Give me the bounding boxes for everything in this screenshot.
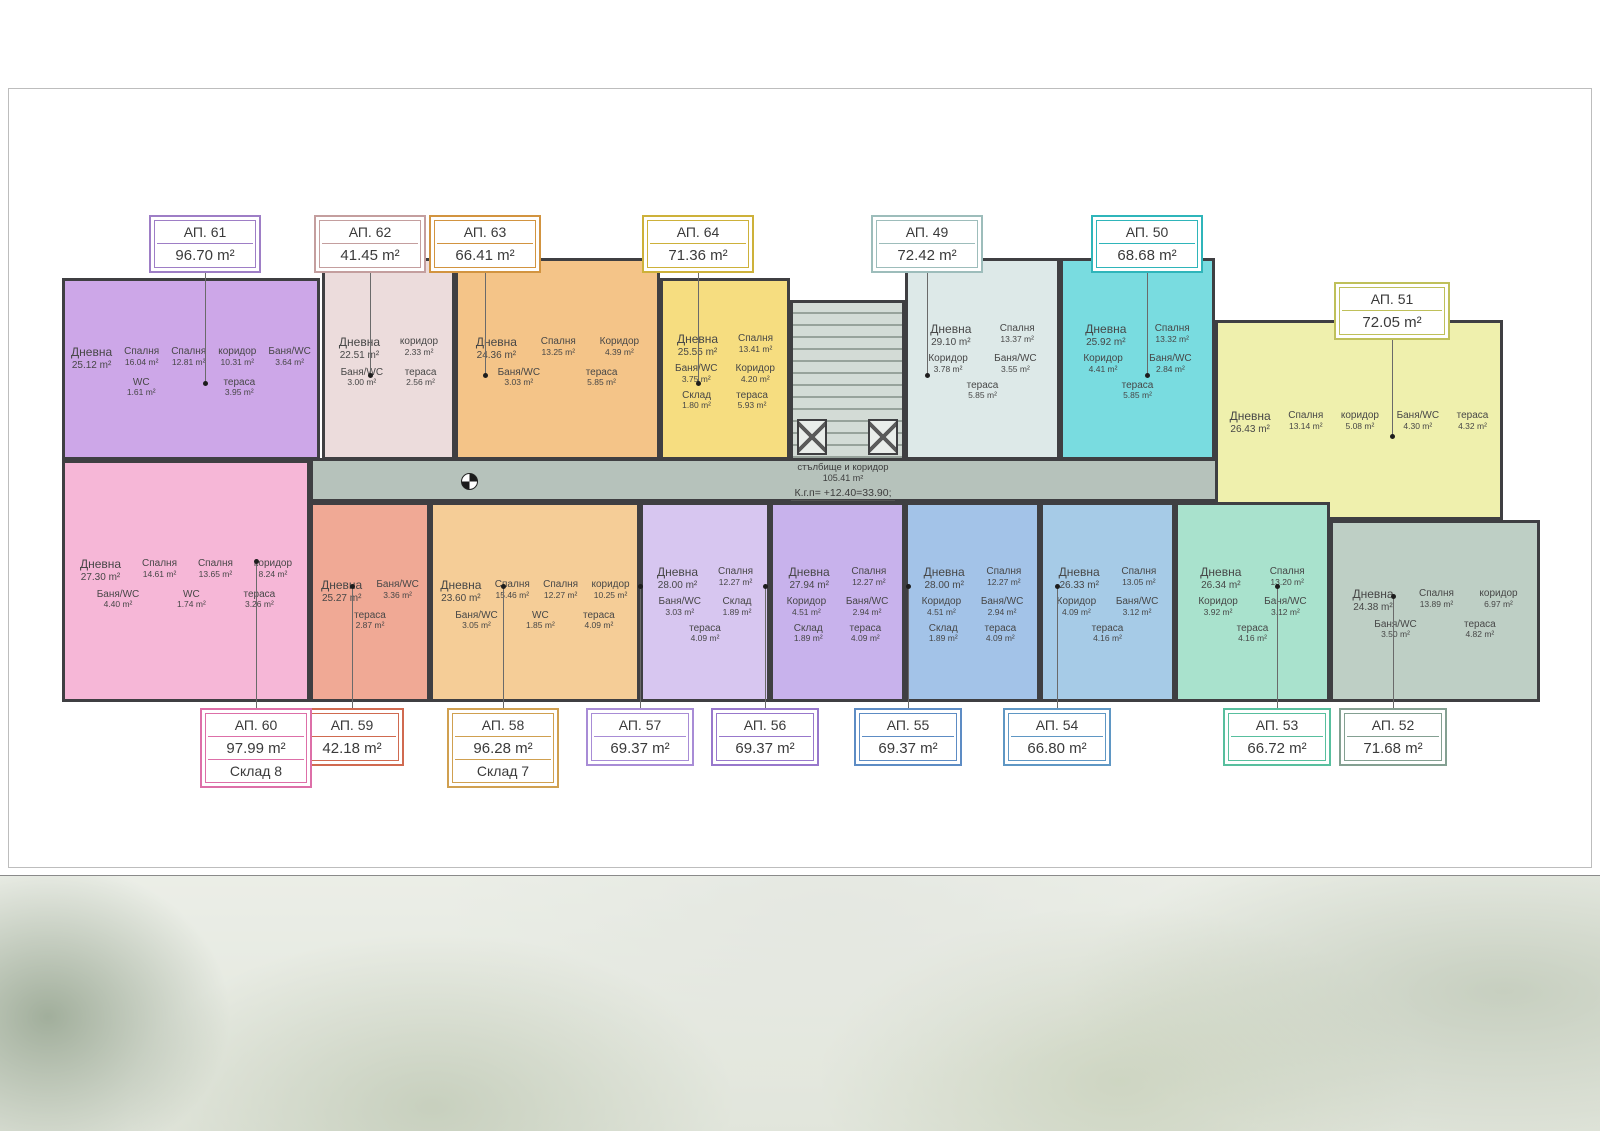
apartment-id: АП. 59 (308, 715, 396, 736)
room-label: Склад1.89 m² (929, 623, 958, 644)
room-label: Дневна29.10 m² (930, 323, 971, 348)
apartment-callout: АП. 5466.80 m² (1003, 708, 1111, 766)
apartment-area: 69.37 m² (594, 736, 686, 759)
apartment-id: АП. 60 (208, 715, 304, 736)
apartment-area: 71.68 m² (1347, 736, 1439, 759)
room-label: Дневна24.36 m² (476, 336, 517, 361)
apartment-id: АП. 58 (455, 715, 551, 736)
apartment-area: 66.72 m² (1231, 736, 1323, 759)
apartment-block: Дневна27.94 m²Спалня12.27 m²Коридор4.51 … (770, 502, 905, 702)
room-label: коридор5.08 m² (1341, 410, 1379, 435)
apartment-area: 68.68 m² (1099, 243, 1195, 266)
apartment-callout: АП. 5896.28 m²Склад 7 (447, 708, 559, 788)
room-label: Коридор4.39 m² (600, 336, 640, 361)
apartment-area: 96.70 m² (157, 243, 253, 266)
callout-leader-line (205, 257, 206, 384)
apartment-callout: АП. 6366.41 m² (429, 215, 541, 273)
leader-dot (763, 584, 768, 589)
room-label: Дневна25.92 m² (1085, 323, 1126, 348)
leader-dot (254, 559, 259, 564)
apartment-area: 69.37 m² (719, 736, 811, 759)
room-label: Склад1.80 m² (682, 390, 711, 411)
room-label: Спалня16.04 m² (124, 346, 159, 371)
callout-leader-line (927, 257, 928, 375)
apartment-block: Дневна27.30 m²Спалня14.61 m²Спалня13.65 … (62, 460, 310, 702)
north-dot-icon (461, 473, 478, 490)
leader-dot (696, 381, 701, 386)
leader-dot (368, 373, 373, 378)
apartment-block: Дневна25.92 m²Спалня13.32 m²Коридор4.41 … (1060, 258, 1215, 460)
room-label: Спалня13.41 m² (738, 333, 773, 358)
room-label: WC1.74 m² (177, 589, 206, 610)
apartment-storage: Склад 8 (208, 759, 304, 781)
room-label: Баня/WC4.30 m² (1397, 410, 1440, 435)
stairwell (790, 300, 905, 461)
callout-leader-line (352, 586, 353, 708)
corridor-label: стълбище и коридор (733, 462, 953, 473)
apartment-area: 97.99 m² (208, 736, 304, 759)
room-label: Баня/WC3.03 m² (498, 367, 541, 388)
apartment-block: Дневна26.43 m²Спалня13.14 m²коридор5.08 … (1215, 320, 1503, 520)
apartment-id: АП. 49 (879, 222, 975, 243)
floor-plan-canvas: стълбище и коридор 105.41 m² К.г.п= +12.… (0, 0, 1600, 870)
room-label: Дневна23.60 m² (440, 579, 481, 604)
room-label: Дневна28.00 m² (657, 566, 698, 591)
room-label: тераса4.09 m² (849, 623, 881, 644)
room-label: тераса4.16 m² (1092, 623, 1124, 644)
room-label: тераса4.09 m² (583, 610, 615, 631)
leader-dot (638, 584, 643, 589)
apartment-area: 69.37 m² (862, 736, 954, 759)
apartment-block: Дневна25.12 m²Спалня16.04 m²Спалня12.81 … (62, 278, 320, 460)
room-label: Дневна27.30 m² (80, 558, 121, 583)
room-label: Дневна24.38 m² (1352, 588, 1393, 613)
room-label: Дневна25.27 m² (321, 579, 362, 604)
apartment-area: 72.05 m² (1342, 310, 1442, 333)
room-label: Склад1.89 m² (794, 623, 823, 644)
room-label: Баня/WC3.50 m² (1374, 619, 1417, 640)
apartment-area: 96.28 m² (455, 736, 551, 759)
room-label: коридор2.33 m² (400, 336, 438, 361)
room-label: Баня/WC2.94 m² (981, 596, 1024, 617)
room-label: Дневна26.34 m² (1200, 566, 1241, 591)
room-label: тераса4.32 m² (1457, 410, 1489, 435)
room-label: тераса2.56 m² (405, 367, 437, 388)
room-label: Спалня12.27 m² (543, 579, 578, 604)
room-label: Баня/WC3.00 m² (341, 367, 384, 388)
apartment-callout: АП. 6241.45 m² (314, 215, 426, 273)
apartment-callout: АП. 5271.68 m² (1339, 708, 1447, 766)
leader-dot (1390, 434, 1395, 439)
apartment-block: Дневна26.33 m²Спалня13.05 m²Коридор4.09 … (1040, 502, 1175, 702)
apartment-block: Дневна25.55 m²Спалня13.41 m²Баня/WC3.75 … (660, 278, 790, 460)
room-label: WC1.85 m² (526, 610, 555, 631)
apartment-callout: АП. 5172.05 m² (1334, 282, 1450, 340)
apartment-block: Дневна29.10 m²Спалня13.37 m²Коридор3.78 … (905, 258, 1060, 460)
room-label: Баня/WC3.05 m² (455, 610, 498, 631)
room-label: Дневна22.51 m² (339, 336, 380, 361)
apartment-id: АП. 55 (862, 715, 954, 736)
room-label: Баня/WC3.12 m² (1116, 596, 1159, 617)
apartment-id: АП. 56 (719, 715, 811, 736)
room-label: Коридор3.78 m² (928, 353, 968, 374)
room-label: Спалня13.14 m² (1288, 410, 1323, 435)
room-label: Спалня13.32 m² (1155, 323, 1190, 348)
room-label: Коридор3.92 m² (1198, 596, 1238, 617)
room-label: коридор10.31 m² (218, 346, 256, 371)
room-label: Спалня13.37 m² (1000, 323, 1035, 348)
room-label: Баня/WC3.03 m² (659, 596, 702, 617)
room-label: коридор10.25 m² (591, 579, 629, 604)
room-label: Коридор4.09 m² (1057, 596, 1097, 617)
callout-leader-line (698, 257, 699, 384)
callout-leader-line (640, 586, 641, 708)
room-label: Баня/WC3.12 m² (1264, 596, 1307, 617)
room-label: тераса3.26 m² (244, 589, 276, 610)
leader-dot (906, 584, 911, 589)
room-label: Спалня13.25 m² (541, 336, 576, 361)
apartment-block: Дневна28.00 m²Спалня12.27 m²Баня/WC3.03 … (640, 502, 770, 702)
leader-dot (925, 373, 930, 378)
room-label: тераса4.16 m² (1237, 623, 1269, 644)
room-label: коридор8.24 m² (254, 558, 292, 583)
apartment-callout: АП. 5068.68 m² (1091, 215, 1203, 273)
apartment-callout: АП. 4972.42 m² (871, 215, 983, 273)
room-label: Спалня13.89 m² (1419, 588, 1454, 613)
leader-dot (501, 584, 506, 589)
room-label: тераса5.93 m² (736, 390, 768, 411)
apartment-callout: АП. 5366.72 m² (1223, 708, 1331, 766)
callout-leader-line (485, 257, 486, 375)
corridor-band: стълбище и коридор 105.41 m² К.г.п= +12.… (310, 458, 1330, 502)
room-label: коридор6.97 m² (1479, 588, 1517, 613)
room-label: Коридор4.51 m² (787, 596, 827, 617)
apartment-id: АП. 50 (1099, 222, 1195, 243)
room-label: тераса4.82 m² (1464, 619, 1496, 640)
room-label: тераса4.09 m² (984, 623, 1016, 644)
apartment-area: 42.18 m² (308, 736, 396, 759)
room-label: тераса3.95 m² (223, 377, 255, 398)
leader-dot (1275, 584, 1280, 589)
callout-leader-line (1392, 324, 1393, 436)
callout-leader-line (1147, 257, 1148, 375)
room-label: Спалня14.61 m² (142, 558, 177, 583)
leader-dot (203, 381, 208, 386)
room-label: Коридор4.51 m² (922, 596, 962, 617)
apartment-block: Дневна26.34 m²Спалня13.20 m²Коридор3.92 … (1175, 502, 1330, 702)
elevator-shaft (797, 419, 827, 455)
callout-leader-line (1393, 596, 1394, 708)
apartment-block: Дневна25.27 m²Баня/WC3.36 m²тераса2.87 m… (310, 502, 430, 702)
room-label: Склад1.89 m² (723, 596, 752, 617)
room-label: Дневна27.94 m² (789, 566, 830, 591)
room-label: Спалня12.27 m² (718, 566, 753, 591)
apartment-id: АП. 51 (1342, 289, 1442, 310)
leader-dot (1055, 584, 1060, 589)
leader-dot (1145, 373, 1150, 378)
room-label: Коридор4.20 m² (736, 363, 776, 384)
corridor-text: стълбище и коридор 105.41 m² К.г.п= +12.… (733, 462, 953, 501)
room-label: Спалня13.05 m² (1121, 566, 1156, 591)
apartment-id: АП. 63 (437, 222, 533, 243)
room-label: Спалня12.27 m² (851, 566, 886, 591)
corridor-level-note: К.г.п= +12.40=33.90; (791, 487, 896, 501)
apartment-id: АП. 52 (1347, 715, 1439, 736)
apartment-area: 41.45 m² (322, 243, 418, 266)
room-label: тераса5.85 m² (967, 380, 999, 401)
apartment-block: Дневна28.00 m²Спалня12.27 m²Коридор4.51 … (905, 502, 1040, 702)
callout-leader-line (908, 586, 909, 708)
apartment-callout: АП. 6471.36 m² (642, 215, 754, 273)
apartment-id: АП. 64 (650, 222, 746, 243)
room-label: Спалня12.81 m² (171, 346, 206, 371)
room-label: Баня/WC3.36 m² (376, 579, 419, 604)
apartment-block: Дневна23.60 m²Спалня15.46 m²Спалня12.27 … (430, 502, 640, 702)
apartment-id: АП. 53 (1231, 715, 1323, 736)
corridor-area: 105.41 m² (733, 473, 953, 483)
apartment-id: АП. 62 (322, 222, 418, 243)
apartment-area: 66.41 m² (437, 243, 533, 266)
apartment-block: Дневна24.38 m²Спалня13.89 m²коридор6.97 … (1330, 520, 1540, 702)
room-label: Дневна28.00 m² (924, 566, 965, 591)
callout-leader-line (1277, 586, 1278, 708)
room-label: Баня/WC3.64 m² (268, 346, 311, 371)
title-strip: С ТОРТУГА 2 Жилищна сграда в УПИ V-3952,… (0, 875, 1600, 1131)
apartment-block: Дневна22.51 m²коридор2.33 m²Баня/WC3.00 … (322, 258, 455, 460)
room-label: Спалня13.65 m² (198, 558, 233, 583)
apartment-callout: АП. 6097.99 m²Склад 8 (200, 708, 312, 788)
room-label: тераса4.09 m² (689, 623, 721, 644)
room-label: Дневна26.43 m² (1230, 410, 1271, 435)
apartment-area: 71.36 m² (650, 243, 746, 266)
floor-plan-sheet: стълбище и коридор 105.41 m² К.г.п= +12.… (0, 0, 1600, 1131)
room-label: Коридор4.41 m² (1083, 353, 1123, 374)
apartment-callout: АП. 5669.37 m² (711, 708, 819, 766)
apartment-area: 72.42 m² (879, 243, 975, 266)
apartment-id: АП. 54 (1011, 715, 1103, 736)
apartment-callout: АП. 6196.70 m² (149, 215, 261, 273)
callout-leader-line (503, 586, 504, 708)
leader-dot (1391, 594, 1396, 599)
room-label: Спалня12.27 m² (986, 566, 1021, 591)
leader-dot (350, 584, 355, 589)
room-label: Баня/WC2.84 m² (1149, 353, 1192, 374)
room-label: Дневна26.33 m² (1059, 566, 1100, 591)
room-label: WC1.61 m² (127, 377, 156, 398)
callout-leader-line (1057, 586, 1058, 708)
callout-leader-line (765, 586, 766, 708)
room-label: тераса2.87 m² (354, 610, 386, 631)
leader-dot (483, 373, 488, 378)
room-label: Баня/WC4.40 m² (97, 589, 140, 610)
room-label: тераса5.85 m² (586, 367, 618, 388)
apartment-storage: Склад 7 (455, 759, 551, 781)
apartment-id: АП. 61 (157, 222, 253, 243)
room-label: Дневна25.12 m² (71, 346, 112, 371)
room-label: Баня/WC3.55 m² (994, 353, 1037, 374)
apartment-id: АП. 57 (594, 715, 686, 736)
room-label: Спалня15.46 m² (495, 579, 530, 604)
room-label: Баня/WC2.94 m² (846, 596, 889, 617)
room-label: тераса5.85 m² (1122, 380, 1154, 401)
callout-leader-line (256, 562, 257, 708)
callout-leader-line (370, 257, 371, 375)
apartment-area: 66.80 m² (1011, 736, 1103, 759)
apartment-callout: АП. 5569.37 m² (854, 708, 962, 766)
elevator-shaft (868, 419, 898, 455)
apartment-callout: АП. 5769.37 m² (586, 708, 694, 766)
apartment-callout: АП. 5942.18 m² (300, 708, 404, 766)
